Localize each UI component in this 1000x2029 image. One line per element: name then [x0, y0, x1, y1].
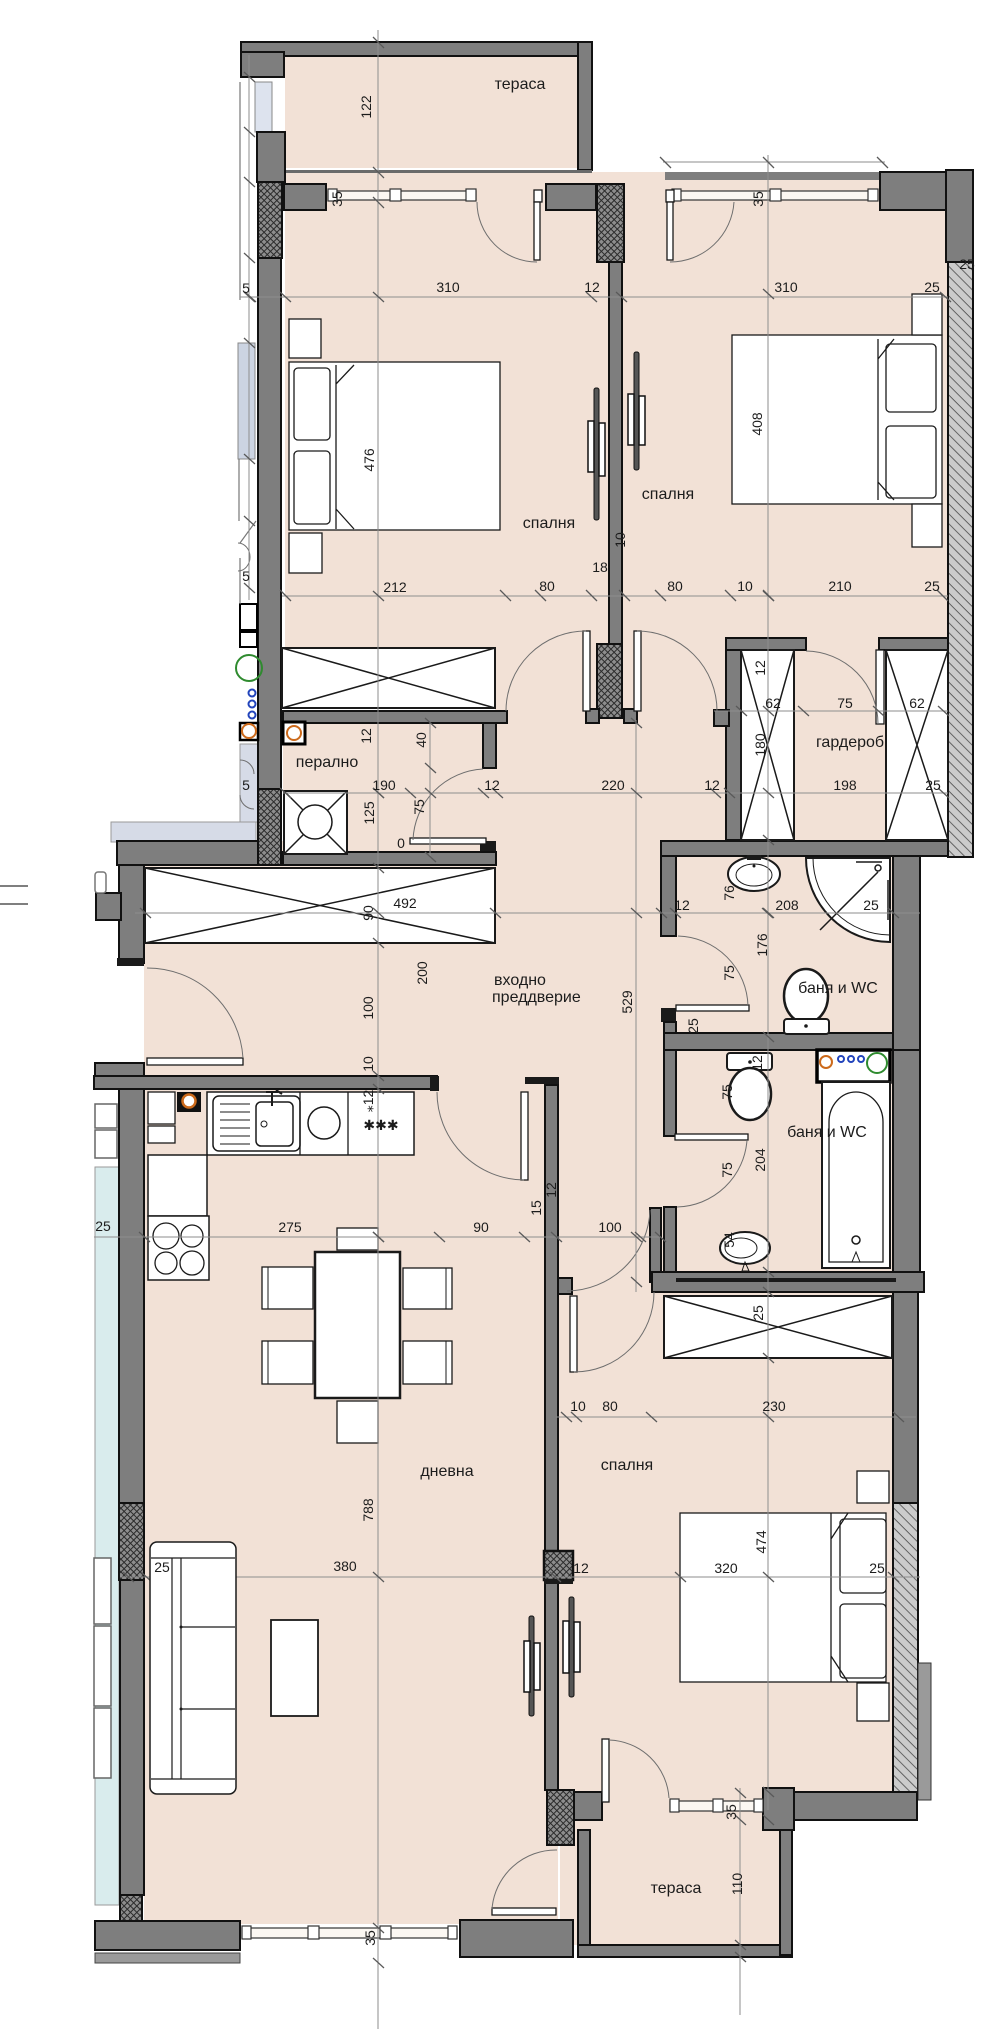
svg-text:гардероб: гардероб	[816, 734, 884, 751]
svg-text:35: 35	[750, 191, 766, 207]
svg-text:перално: перално	[296, 754, 359, 771]
svg-text:0: 0	[397, 835, 405, 851]
svg-text:тераса: тераса	[495, 76, 546, 93]
svg-text:310: 310	[774, 279, 798, 295]
svg-text:10: 10	[612, 532, 628, 548]
svg-text:12: 12	[584, 279, 600, 295]
svg-text:474: 474	[753, 1530, 769, 1554]
svg-text:62: 62	[909, 695, 925, 711]
svg-text:спалня: спалня	[523, 515, 575, 532]
svg-text:тераса: тераса	[651, 1880, 702, 1897]
svg-text:баня и WC: баня и WC	[787, 1124, 867, 1141]
svg-text:100: 100	[598, 1219, 622, 1235]
svg-text:12: 12	[358, 728, 374, 744]
svg-text:320: 320	[714, 1560, 738, 1576]
svg-text:35: 35	[723, 1804, 739, 1820]
svg-text:54: 54	[721, 1232, 737, 1248]
svg-text:преддверие: преддверие	[492, 989, 581, 1006]
svg-text:25: 25	[154, 1559, 170, 1575]
svg-text:25: 25	[925, 777, 941, 793]
svg-text:10: 10	[360, 1056, 376, 1072]
svg-text:12: 12	[704, 777, 720, 793]
svg-text:408: 408	[749, 412, 765, 436]
svg-text:5: 5	[242, 568, 250, 584]
svg-text:35: 35	[362, 1930, 378, 1946]
svg-text:12: 12	[484, 777, 500, 793]
svg-text:12: 12	[752, 660, 768, 676]
svg-text:476: 476	[361, 448, 377, 472]
svg-text:спалня: спалня	[601, 1457, 653, 1474]
svg-text:входно: входно	[494, 972, 546, 989]
svg-text:275: 275	[278, 1219, 302, 1235]
svg-text:40: 40	[413, 732, 429, 748]
svg-text:180: 180	[752, 733, 768, 757]
svg-text:212: 212	[383, 579, 407, 595]
svg-text:220: 220	[601, 777, 625, 793]
svg-text:25: 25	[869, 1560, 885, 1576]
svg-text:✱✱✱: ✱✱✱	[363, 1117, 398, 1133]
svg-text:баня и WC: баня и WC	[798, 980, 878, 997]
svg-text:190: 190	[372, 777, 396, 793]
svg-text:12: 12	[543, 1182, 559, 1198]
svg-text:12: 12	[573, 1560, 589, 1576]
svg-text:25: 25	[750, 1305, 766, 1321]
svg-text:25: 25	[924, 279, 940, 295]
svg-text:529: 529	[619, 990, 635, 1014]
svg-text:80: 80	[602, 1398, 618, 1414]
svg-text:122: 122	[358, 95, 374, 119]
svg-text:75: 75	[721, 965, 737, 981]
svg-text:5: 5	[242, 777, 250, 793]
svg-text:18: 18	[592, 559, 608, 575]
svg-text:12: 12	[749, 1055, 765, 1071]
svg-text:25: 25	[924, 578, 940, 594]
svg-text:80: 80	[667, 578, 683, 594]
svg-text:230: 230	[762, 1398, 786, 1414]
svg-text:90: 90	[473, 1219, 489, 1235]
svg-text:10: 10	[737, 578, 753, 594]
svg-text:90: 90	[360, 905, 376, 921]
svg-text:75: 75	[837, 695, 853, 711]
svg-text:5: 5	[242, 280, 250, 296]
svg-text:62: 62	[765, 695, 781, 711]
svg-text:25: 25	[95, 1218, 111, 1234]
svg-text:75: 75	[411, 799, 427, 815]
svg-text:492: 492	[393, 895, 417, 911]
svg-text:15: 15	[528, 1200, 544, 1216]
svg-text:75: 75	[719, 1162, 735, 1178]
svg-text:35: 35	[329, 191, 345, 207]
svg-text:25: 25	[685, 1018, 701, 1034]
svg-text:⁎12: ⁎12	[360, 1090, 376, 1113]
svg-text:25: 25	[959, 256, 975, 272]
svg-text:дневна: дневна	[420, 1463, 473, 1480]
svg-text:спалня: спалня	[642, 486, 694, 503]
svg-text:204: 204	[752, 1148, 768, 1172]
svg-text:80: 80	[539, 578, 555, 594]
svg-text:100: 100	[360, 996, 376, 1020]
svg-text:10: 10	[570, 1398, 586, 1414]
svg-text:75: 75	[719, 1084, 735, 1100]
svg-text:310: 310	[436, 279, 460, 295]
svg-text:380: 380	[333, 1558, 357, 1574]
svg-text:200: 200	[414, 961, 430, 985]
svg-text:25: 25	[863, 897, 879, 913]
svg-text:125: 125	[361, 801, 377, 825]
svg-text:176: 176	[754, 933, 770, 957]
svg-text:12: 12	[674, 897, 690, 913]
svg-text:110: 110	[729, 1873, 745, 1896]
svg-text:198: 198	[833, 777, 857, 793]
svg-text:788: 788	[360, 1498, 376, 1522]
svg-text:208: 208	[775, 897, 799, 913]
svg-text:76: 76	[721, 885, 737, 901]
svg-text:210: 210	[828, 578, 852, 594]
